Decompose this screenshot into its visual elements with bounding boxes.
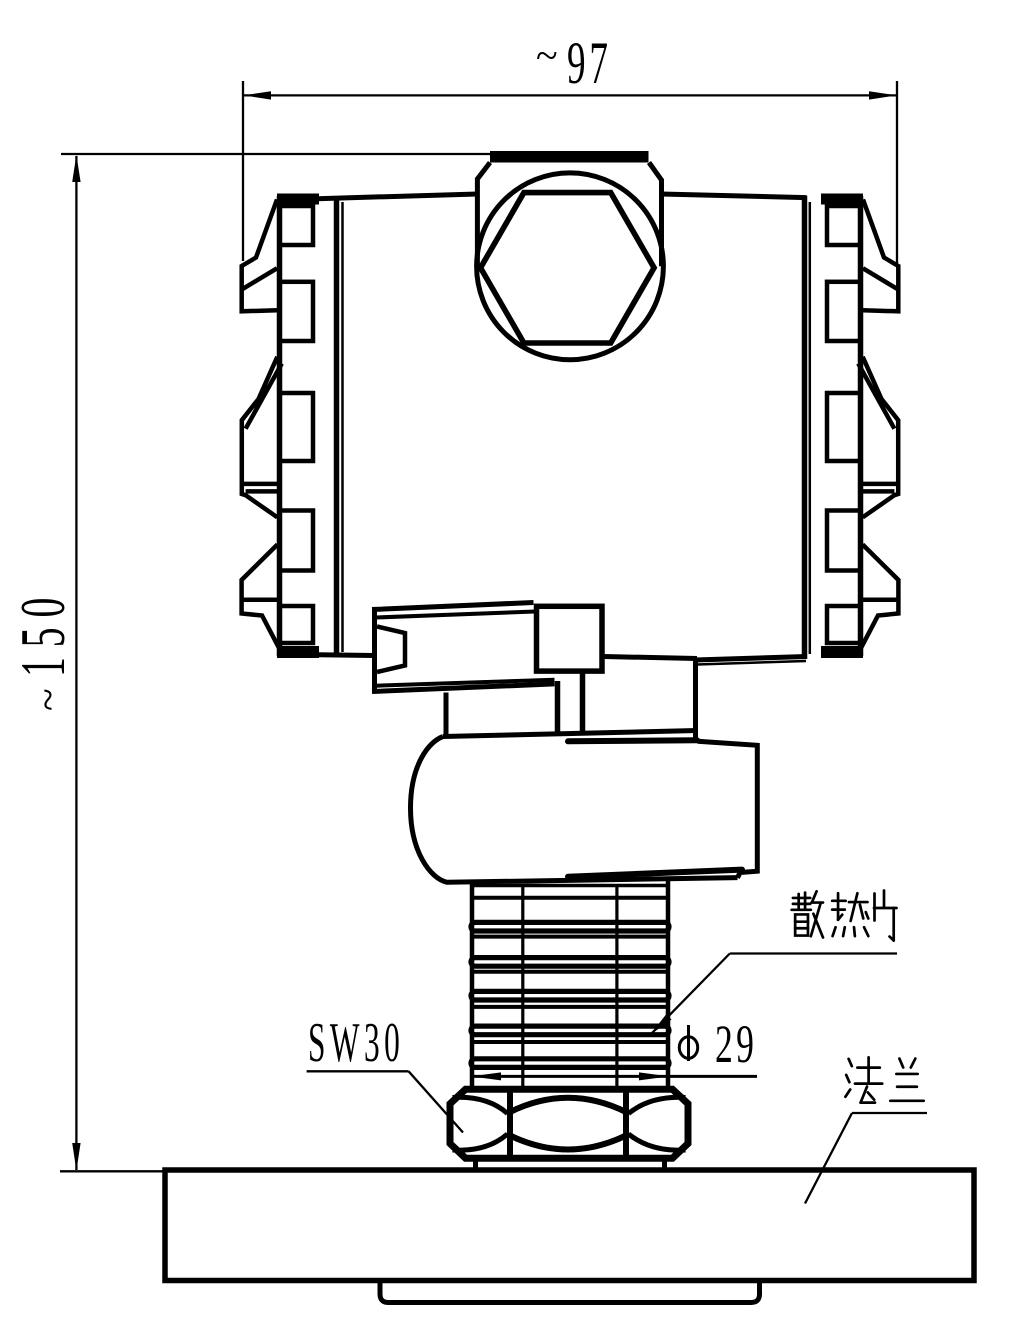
svg-text:SW30: SW30 <box>308 1012 404 1074</box>
svg-text:29: 29 <box>715 1014 757 1074</box>
svg-text:150: 150 <box>8 588 79 677</box>
svg-text:~: ~ <box>536 33 558 78</box>
svg-text:97: 97 <box>567 30 612 96</box>
svg-text:~: ~ <box>26 688 72 711</box>
